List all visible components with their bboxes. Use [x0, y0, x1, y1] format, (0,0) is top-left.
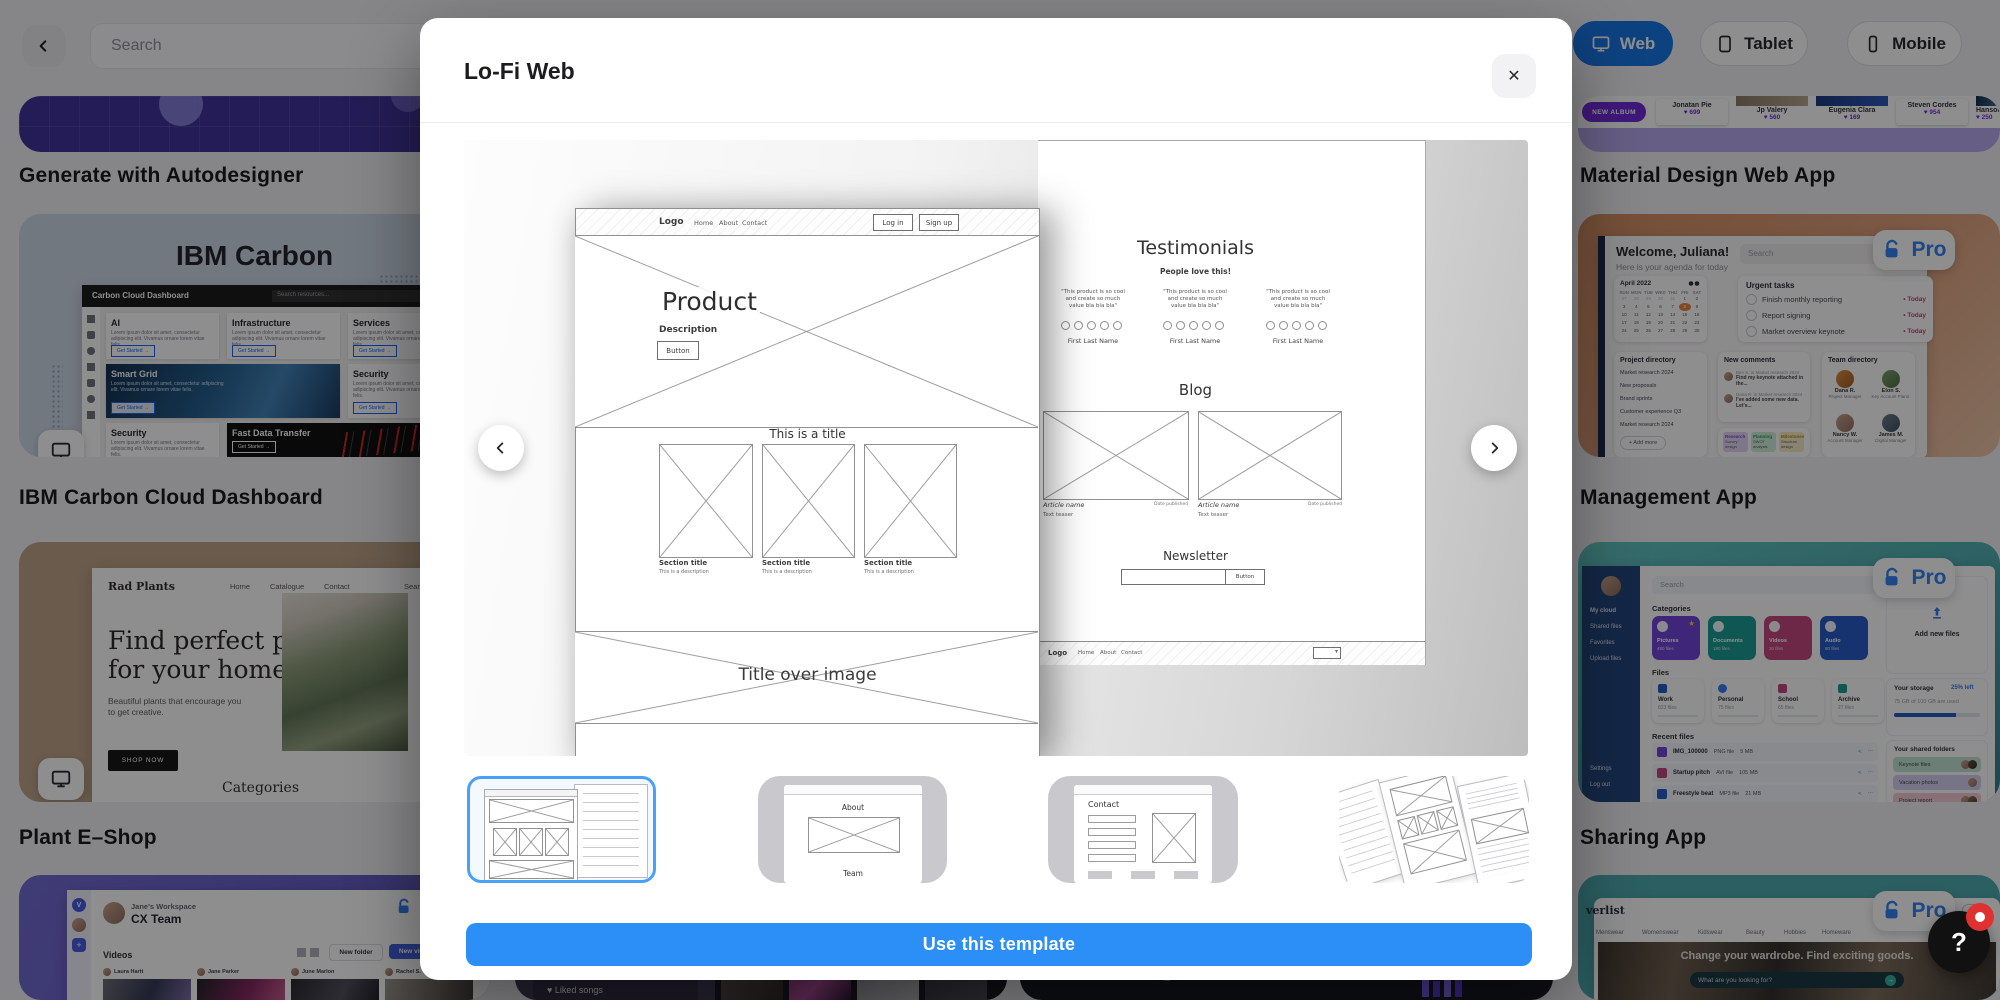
footer-nav-home: Home [1078, 650, 1094, 656]
section-image-placeholder [659, 444, 753, 558]
caret-down-icon: ▾ [1335, 648, 1338, 655]
star-circle-icon [1163, 321, 1172, 330]
testimonial-stars [1265, 315, 1331, 334]
thumb-mini-page [484, 789, 578, 883]
section-card-title: Section title [864, 559, 912, 567]
thumb-mini-lines [1477, 838, 1529, 878]
testimonials-title: Testimonials [1038, 237, 1353, 259]
thumb-xbox [1436, 806, 1458, 830]
template-preview-modal: Lo-Fi Web ✕ Logo Home About Contact Log … [420, 18, 1572, 980]
article-image-placeholder [1043, 411, 1189, 500]
testimonial-stars [1060, 315, 1126, 334]
x-placeholder-lines [809, 818, 899, 852]
footer-select: ▾ [1313, 647, 1341, 659]
thumbnail-1-selected[interactable] [467, 776, 656, 883]
thumbnail-3[interactable]: Contact [1048, 776, 1238, 883]
wire-signup-button: Sign up [919, 214, 959, 231]
testimonial-person: First Last Name [1060, 337, 1126, 345]
newsletter-button: Button [1225, 569, 1265, 585]
hero-title: Product [659, 287, 760, 316]
star-circle-icon [1189, 321, 1198, 330]
thumb-xbox [545, 828, 569, 856]
x-placeholder-lines [494, 829, 516, 855]
article-name: Article name [1198, 501, 1239, 509]
article-date: Date published [1308, 502, 1342, 507]
x-placeholder-lines [1437, 807, 1457, 828]
wire-nav-home: Home [694, 219, 713, 227]
footer-logo: Logo [1048, 649, 1067, 657]
testimonial-column: "This product is so cool and create so m… [1162, 289, 1228, 345]
wire-logo: Logo [659, 217, 684, 227]
wire-nav-about: About [719, 219, 738, 227]
star-circle-icon [1266, 321, 1275, 330]
star-circle-icon [1292, 321, 1301, 330]
thumb-form-field [1088, 828, 1136, 836]
thumb-mini-lines [1465, 783, 1520, 813]
use-template-button[interactable]: Use this template [466, 923, 1532, 966]
thumb-mini-navbar [784, 785, 922, 795]
testimonial-person: First Last Name [1265, 337, 1331, 345]
x-placeholder-lines [546, 829, 568, 855]
thumb-xbox [489, 799, 574, 823]
modal-title: Lo-Fi Web [464, 58, 575, 85]
x-placeholder-lines [1404, 831, 1466, 874]
preview-carousel: Logo Home About Contact Log in Sign up P… [464, 140, 1528, 756]
thumb-xbox [1152, 813, 1196, 863]
x-placeholder-lines [1472, 809, 1528, 843]
section-card-desc: This is a description [864, 569, 914, 575]
thumb-xbox [1417, 811, 1439, 835]
wire-footer: Logo Home About Contact ▾ [1033, 641, 1425, 665]
x-placeholder-lines [1398, 817, 1418, 838]
question-mark-icon: ? [1951, 927, 1967, 958]
article-teaser: Text teaser [1043, 512, 1073, 518]
testimonial-quote: "This product is so cool and create so m… [1265, 289, 1331, 310]
thumb-about-title: About [784, 803, 922, 812]
section-heading: This is a title [576, 427, 1039, 441]
thumb-screen: Contact [1074, 785, 1212, 883]
footer-nav-about: About [1100, 650, 1116, 656]
star-circle-icon [1176, 321, 1185, 330]
star-circle-icon [1202, 321, 1211, 330]
wireframe-page-1: Logo Home About Contact Log in Sign up P… [575, 208, 1040, 756]
thumb-xbox [1397, 816, 1419, 840]
testimonials-subtitle: People love this! [1038, 267, 1353, 276]
blog-title: Blog [1038, 381, 1353, 399]
x-placeholder-lines [1153, 814, 1195, 862]
thumbnail-2[interactable]: About Team [758, 776, 947, 883]
thumb-team-title: Team [784, 869, 922, 878]
thumb-mini-lines [1088, 871, 1198, 879]
chevron-right-icon [1486, 440, 1502, 456]
section-card-title: Section title [659, 559, 707, 567]
thumb-form-field [1088, 841, 1136, 849]
newsletter-input: Button [1121, 569, 1265, 585]
star-circle-icon [1061, 321, 1070, 330]
chevron-left-icon [493, 440, 509, 456]
article-date: Date published [1154, 502, 1188, 507]
thumb-xbox [519, 828, 543, 856]
thumb-xbox [808, 817, 900, 853]
article-teaser: Text teaser [1198, 512, 1228, 518]
hero-image-placeholder [575, 235, 1038, 428]
hero-button: Button [657, 341, 699, 360]
banner-title: Title over image [576, 665, 1039, 685]
star-circle-icon [1100, 321, 1109, 330]
thumb-mini-navbar [1074, 785, 1212, 795]
section-card-title: Section title [762, 559, 810, 567]
testimonial-column: "This product is so cool and create so m… [1060, 289, 1126, 345]
x-placeholder-lines [1418, 812, 1438, 833]
x-placeholder-lines [865, 445, 956, 557]
thumb-form-field [1088, 815, 1136, 823]
x-placeholder-lines [1199, 412, 1341, 499]
testimonial-person: First Last Name [1162, 337, 1228, 345]
section-image-placeholder [864, 444, 957, 558]
star-circle-icon [1074, 321, 1083, 330]
thumbnail-4[interactable] [1339, 776, 1529, 883]
thumb-mini-page [574, 784, 648, 878]
star-circle-icon [1087, 321, 1096, 330]
hero-description: Description [659, 325, 717, 335]
x-placeholder-lines [660, 445, 752, 557]
section-image-placeholder [762, 444, 855, 558]
testimonial-column: "This product is so cool and create so m… [1265, 289, 1331, 345]
notification-dot [1966, 903, 1994, 931]
divider [420, 122, 1572, 123]
article-image-placeholder [1198, 411, 1342, 500]
thumb-mini-navbar [485, 790, 577, 797]
x-placeholder-lines [1044, 412, 1188, 499]
wire-nav-contact: Contact [742, 219, 767, 227]
testimonial-stars [1162, 315, 1228, 334]
wire-navbar: Logo Home About Contact Log in Sign up [576, 209, 1039, 236]
wire-login-button: Log in [873, 214, 913, 231]
thumb-mini-lines [583, 793, 639, 869]
carousel-next-button[interactable] [1471, 425, 1517, 471]
article-name: Article name [1043, 501, 1084, 509]
wireframe-page-2: Testimonials People love this! "This pro… [1038, 140, 1426, 665]
thumb-xbox [493, 828, 517, 856]
x-placeholder-lines [490, 800, 573, 822]
footer-nav-contact: Contact [1121, 650, 1142, 656]
x-placeholder-lines [520, 829, 542, 855]
carousel-prev-button[interactable] [478, 425, 524, 471]
star-circle-icon [1305, 321, 1314, 330]
section-card-desc: This is a description [762, 569, 812, 575]
testimonial-quote: "This product is so cool and create so m… [1162, 289, 1228, 310]
x-placeholder-lines [490, 861, 573, 878]
newsletter-title: Newsletter [1038, 549, 1353, 563]
thumb-form-field [1088, 854, 1136, 862]
testimonial-quote: "This product is so cool and create so m… [1060, 289, 1126, 310]
section-card-desc: This is a description [659, 569, 709, 575]
star-circle-icon [1318, 321, 1327, 330]
star-circle-icon [1113, 321, 1122, 330]
x-placeholder-lines [575, 236, 1038, 427]
thumb-screen: About Team [784, 785, 922, 883]
close-icon: ✕ [1507, 66, 1520, 86]
star-circle-icon [1279, 321, 1288, 330]
screen: Generate with Autodesigner IBM Carbon Ca… [0, 0, 2000, 1000]
thumb-xbox [489, 860, 574, 879]
x-placeholder-lines [763, 445, 854, 557]
thumb-contact-title: Contact [1088, 800, 1119, 809]
star-circle-icon [1215, 321, 1224, 330]
close-button[interactable]: ✕ [1492, 54, 1536, 98]
